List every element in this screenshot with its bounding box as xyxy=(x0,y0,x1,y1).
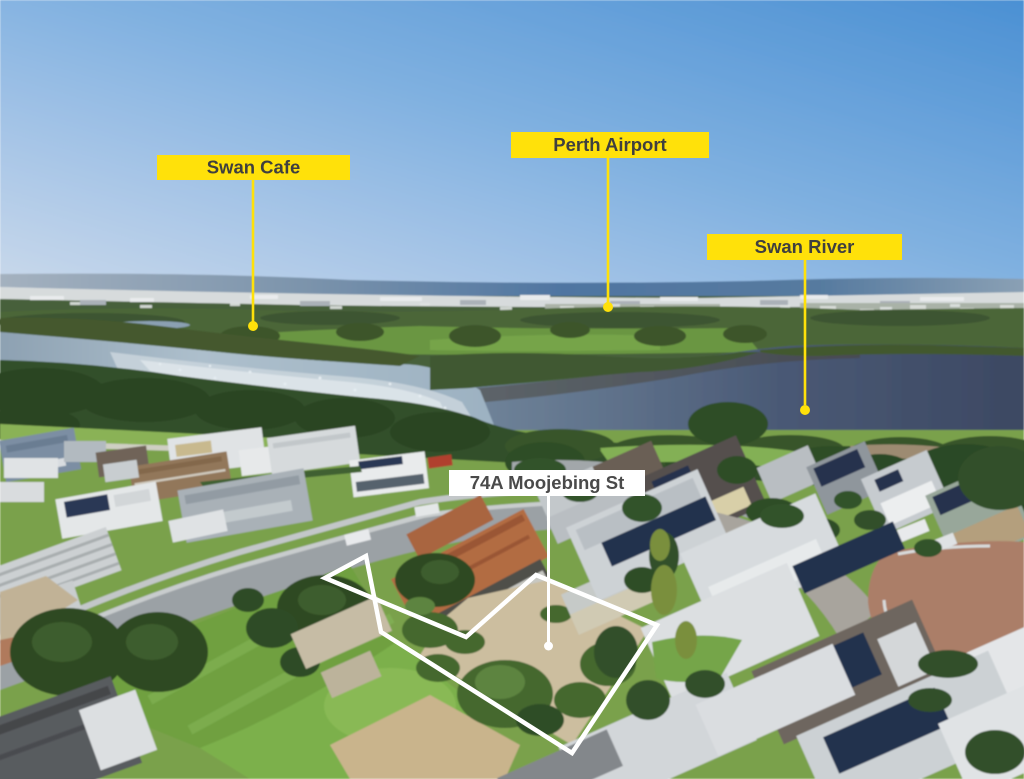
svg-text:Swan River: Swan River xyxy=(755,236,855,257)
svg-text:74A Moojebing St: 74A Moojebing St xyxy=(470,472,625,493)
svg-text:Perth Airport: Perth Airport xyxy=(553,134,666,155)
svg-text:Swan Cafe: Swan Cafe xyxy=(207,157,301,178)
